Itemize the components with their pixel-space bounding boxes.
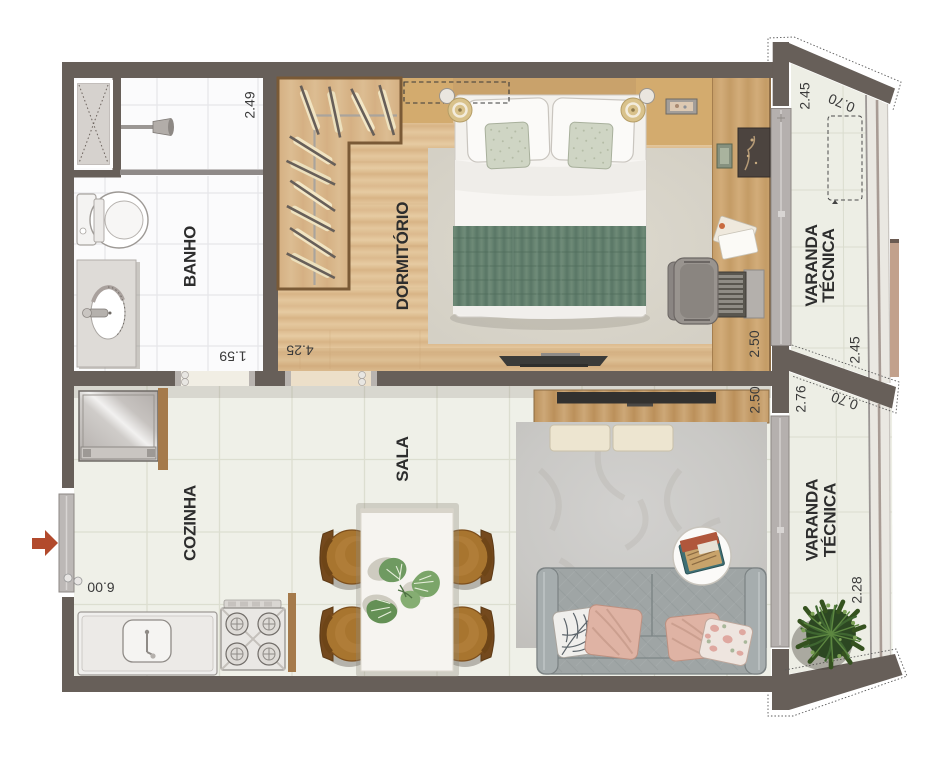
svg-text:2.45: 2.45: [847, 336, 863, 363]
svg-text:DORMITÓRIO: DORMITÓRIO: [393, 202, 412, 311]
svg-text:2.45: 2.45: [797, 82, 813, 109]
svg-text:2.50: 2.50: [747, 386, 763, 413]
svg-text:4.25: 4.25: [286, 342, 313, 358]
svg-text:1.59: 1.59: [219, 348, 246, 364]
svg-text:2.28: 2.28: [849, 576, 865, 603]
svg-text:COZINHA: COZINHA: [180, 485, 199, 561]
svg-text:TÉCNICA: TÉCNICA: [819, 228, 838, 302]
svg-text:TÉCNICA: TÉCNICA: [820, 483, 839, 557]
svg-text:BANHO: BANHO: [180, 226, 199, 287]
svg-text:VARANDA: VARANDA: [802, 479, 821, 561]
svg-text:2.76: 2.76: [793, 385, 809, 412]
svg-text:6.00: 6.00: [87, 579, 114, 595]
svg-text:SALA: SALA: [393, 436, 412, 481]
svg-text:2.50: 2.50: [746, 330, 762, 357]
svg-text:2.49: 2.49: [242, 91, 258, 118]
